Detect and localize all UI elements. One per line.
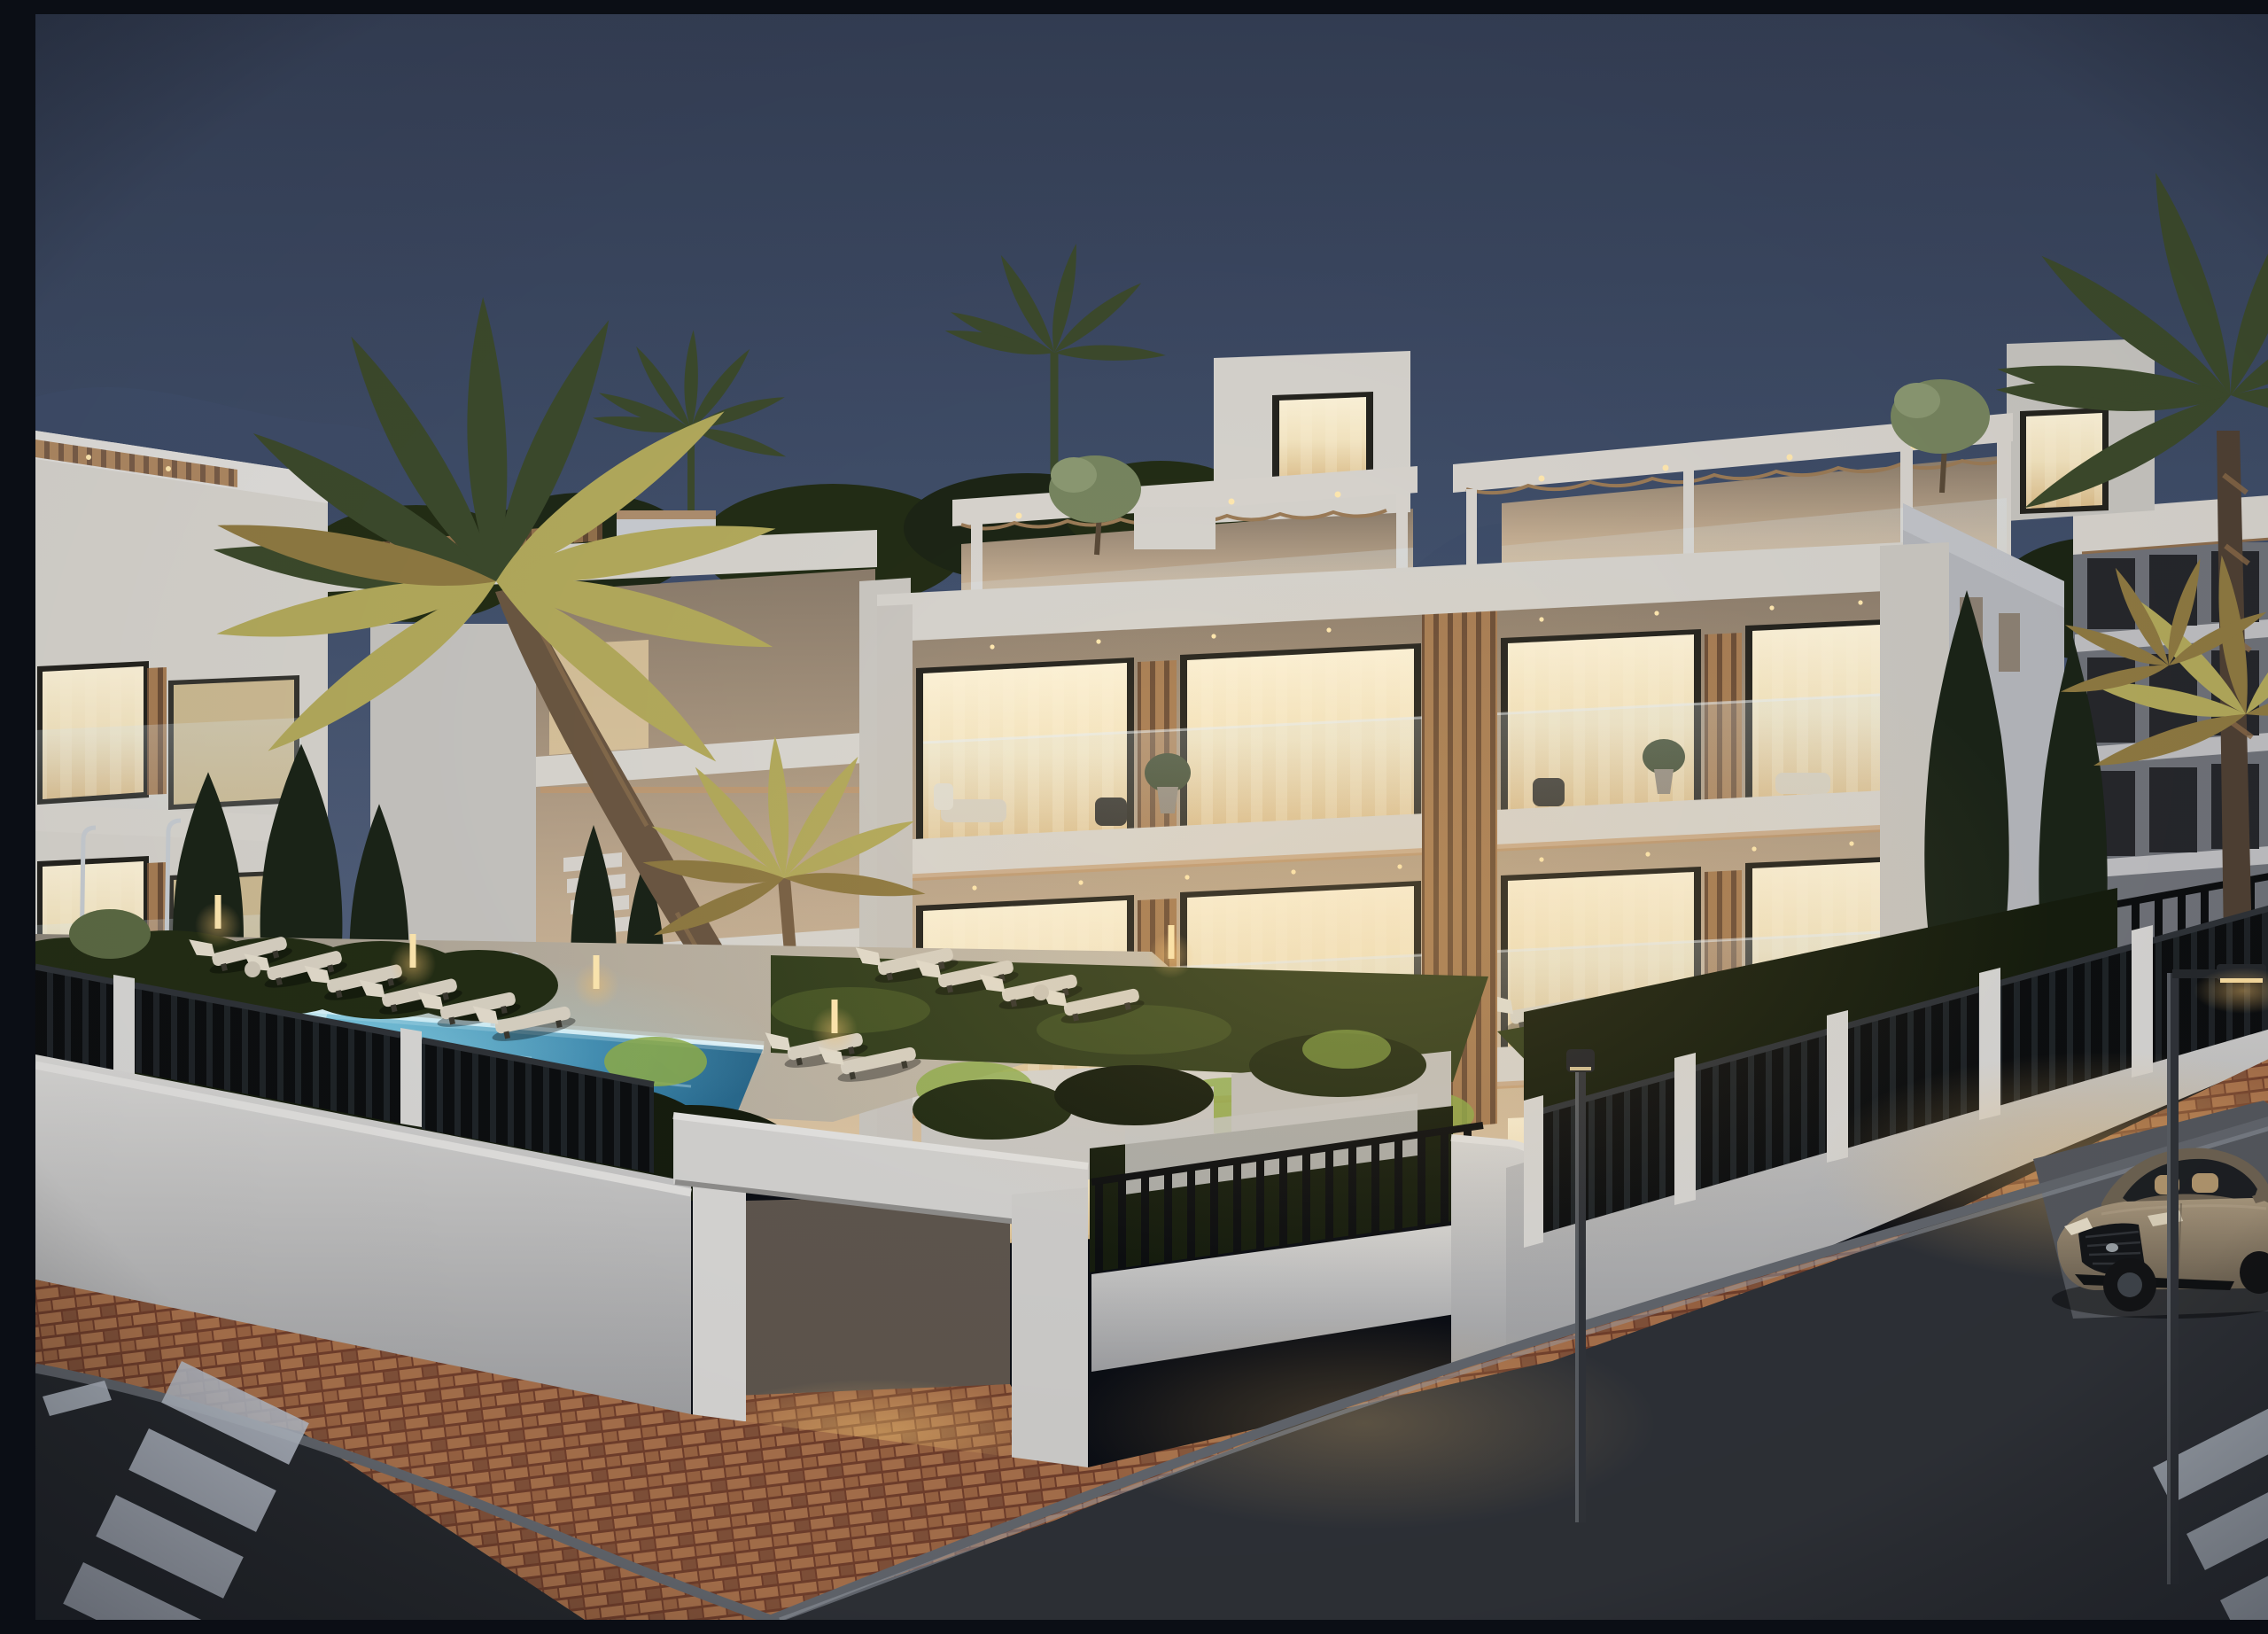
atmosphere bbox=[35, 14, 2268, 1620]
render-canvas bbox=[35, 14, 2268, 1620]
vignette bbox=[35, 14, 2268, 1620]
architectural-night-render bbox=[35, 14, 2268, 1620]
